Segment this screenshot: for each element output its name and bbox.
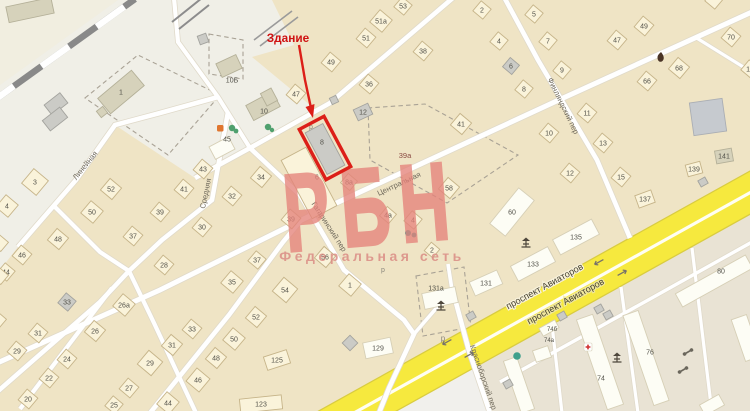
- svg-text:29: 29: [146, 360, 154, 367]
- svg-text:45: 45: [223, 136, 231, 143]
- svg-text:52: 52: [107, 186, 115, 193]
- svg-text:47: 47: [292, 91, 300, 98]
- svg-text:129: 129: [372, 345, 384, 352]
- svg-text:22: 22: [45, 375, 53, 382]
- svg-text:25: 25: [110, 402, 118, 409]
- svg-text:50: 50: [230, 336, 238, 343]
- svg-text:39: 39: [156, 209, 164, 216]
- svg-text:8: 8: [522, 86, 526, 93]
- svg-text:125: 125: [271, 357, 283, 364]
- svg-text:41: 41: [457, 121, 465, 128]
- svg-text:10: 10: [545, 130, 553, 137]
- svg-text:11: 11: [583, 110, 590, 117]
- svg-text:4: 4: [497, 38, 501, 45]
- svg-text:33: 33: [188, 326, 196, 333]
- svg-text:31: 31: [168, 342, 176, 349]
- svg-text:26: 26: [91, 328, 99, 335]
- svg-text:Федеральная сеть: Федеральная сеть: [279, 248, 464, 264]
- svg-text:133: 133: [527, 261, 539, 268]
- svg-text:15: 15: [617, 174, 625, 181]
- svg-text:50: 50: [88, 209, 96, 216]
- svg-text:66: 66: [643, 78, 651, 85]
- svg-text:137: 137: [639, 196, 651, 203]
- svg-text:47: 47: [613, 37, 621, 44]
- svg-text:6: 6: [509, 63, 513, 70]
- svg-text:28: 28: [160, 262, 168, 269]
- svg-text:36: 36: [365, 81, 373, 88]
- svg-text:123: 123: [255, 401, 267, 408]
- svg-text:80: 80: [717, 268, 725, 275]
- svg-text:20: 20: [24, 396, 32, 403]
- svg-text:131а: 131а: [428, 285, 444, 292]
- svg-text:9: 9: [560, 67, 564, 74]
- svg-text:Здание: Здание: [267, 31, 310, 45]
- svg-text:54: 54: [281, 287, 289, 294]
- svg-text:10: 10: [260, 108, 268, 115]
- svg-text:49: 49: [640, 23, 648, 30]
- svg-text:30: 30: [198, 224, 206, 231]
- svg-text:4: 4: [5, 203, 9, 210]
- svg-text:27: 27: [125, 385, 133, 392]
- svg-text:76: 76: [646, 349, 654, 356]
- svg-text:12: 12: [359, 109, 367, 116]
- svg-text:8: 8: [320, 139, 324, 146]
- svg-text:131: 131: [480, 280, 492, 287]
- svg-text:135: 135: [570, 234, 582, 241]
- svg-text:5: 5: [532, 11, 536, 18]
- svg-text:35: 35: [228, 279, 236, 286]
- svg-text:24: 24: [63, 356, 71, 363]
- svg-text:37: 37: [253, 257, 261, 264]
- svg-text:12: 12: [566, 170, 574, 177]
- svg-text:2: 2: [480, 7, 484, 14]
- svg-text:74а: 74а: [544, 338, 555, 344]
- svg-text:74б: 74б: [547, 327, 558, 333]
- svg-text:43: 43: [199, 166, 207, 173]
- svg-text:139: 139: [688, 166, 700, 173]
- svg-text:29: 29: [13, 348, 21, 355]
- svg-text:1: 1: [348, 282, 352, 289]
- svg-text:38: 38: [419, 48, 427, 55]
- svg-text:68: 68: [675, 65, 683, 72]
- svg-text:7: 7: [546, 38, 550, 45]
- svg-text:44: 44: [164, 400, 172, 407]
- svg-text:46: 46: [18, 252, 26, 259]
- svg-text:р: р: [381, 267, 385, 274]
- svg-text:31: 31: [34, 330, 42, 337]
- svg-text:48: 48: [54, 236, 62, 243]
- svg-text:10Б: 10Б: [226, 77, 239, 84]
- svg-text:16: 16: [746, 66, 750, 73]
- svg-text:49: 49: [327, 59, 335, 66]
- svg-text:48: 48: [212, 355, 220, 362]
- svg-text:53: 53: [399, 3, 407, 10]
- svg-text:46: 46: [194, 377, 202, 384]
- svg-text:37: 37: [129, 233, 137, 240]
- svg-text:1: 1: [119, 89, 123, 96]
- svg-text:51: 51: [362, 35, 370, 42]
- svg-text:70: 70: [727, 34, 735, 41]
- svg-text:74: 74: [597, 375, 605, 382]
- svg-text:51а: 51а: [375, 18, 387, 25]
- svg-text:141: 141: [718, 153, 730, 160]
- svg-text:41: 41: [180, 186, 188, 193]
- svg-text:3: 3: [33, 179, 37, 186]
- svg-text:60: 60: [508, 209, 516, 216]
- svg-text:32: 32: [228, 193, 236, 200]
- svg-text:26а: 26а: [118, 302, 130, 309]
- svg-text:34: 34: [257, 174, 265, 181]
- svg-text:33: 33: [63, 299, 71, 306]
- svg-text:52: 52: [252, 314, 260, 321]
- svg-text:13: 13: [599, 140, 607, 147]
